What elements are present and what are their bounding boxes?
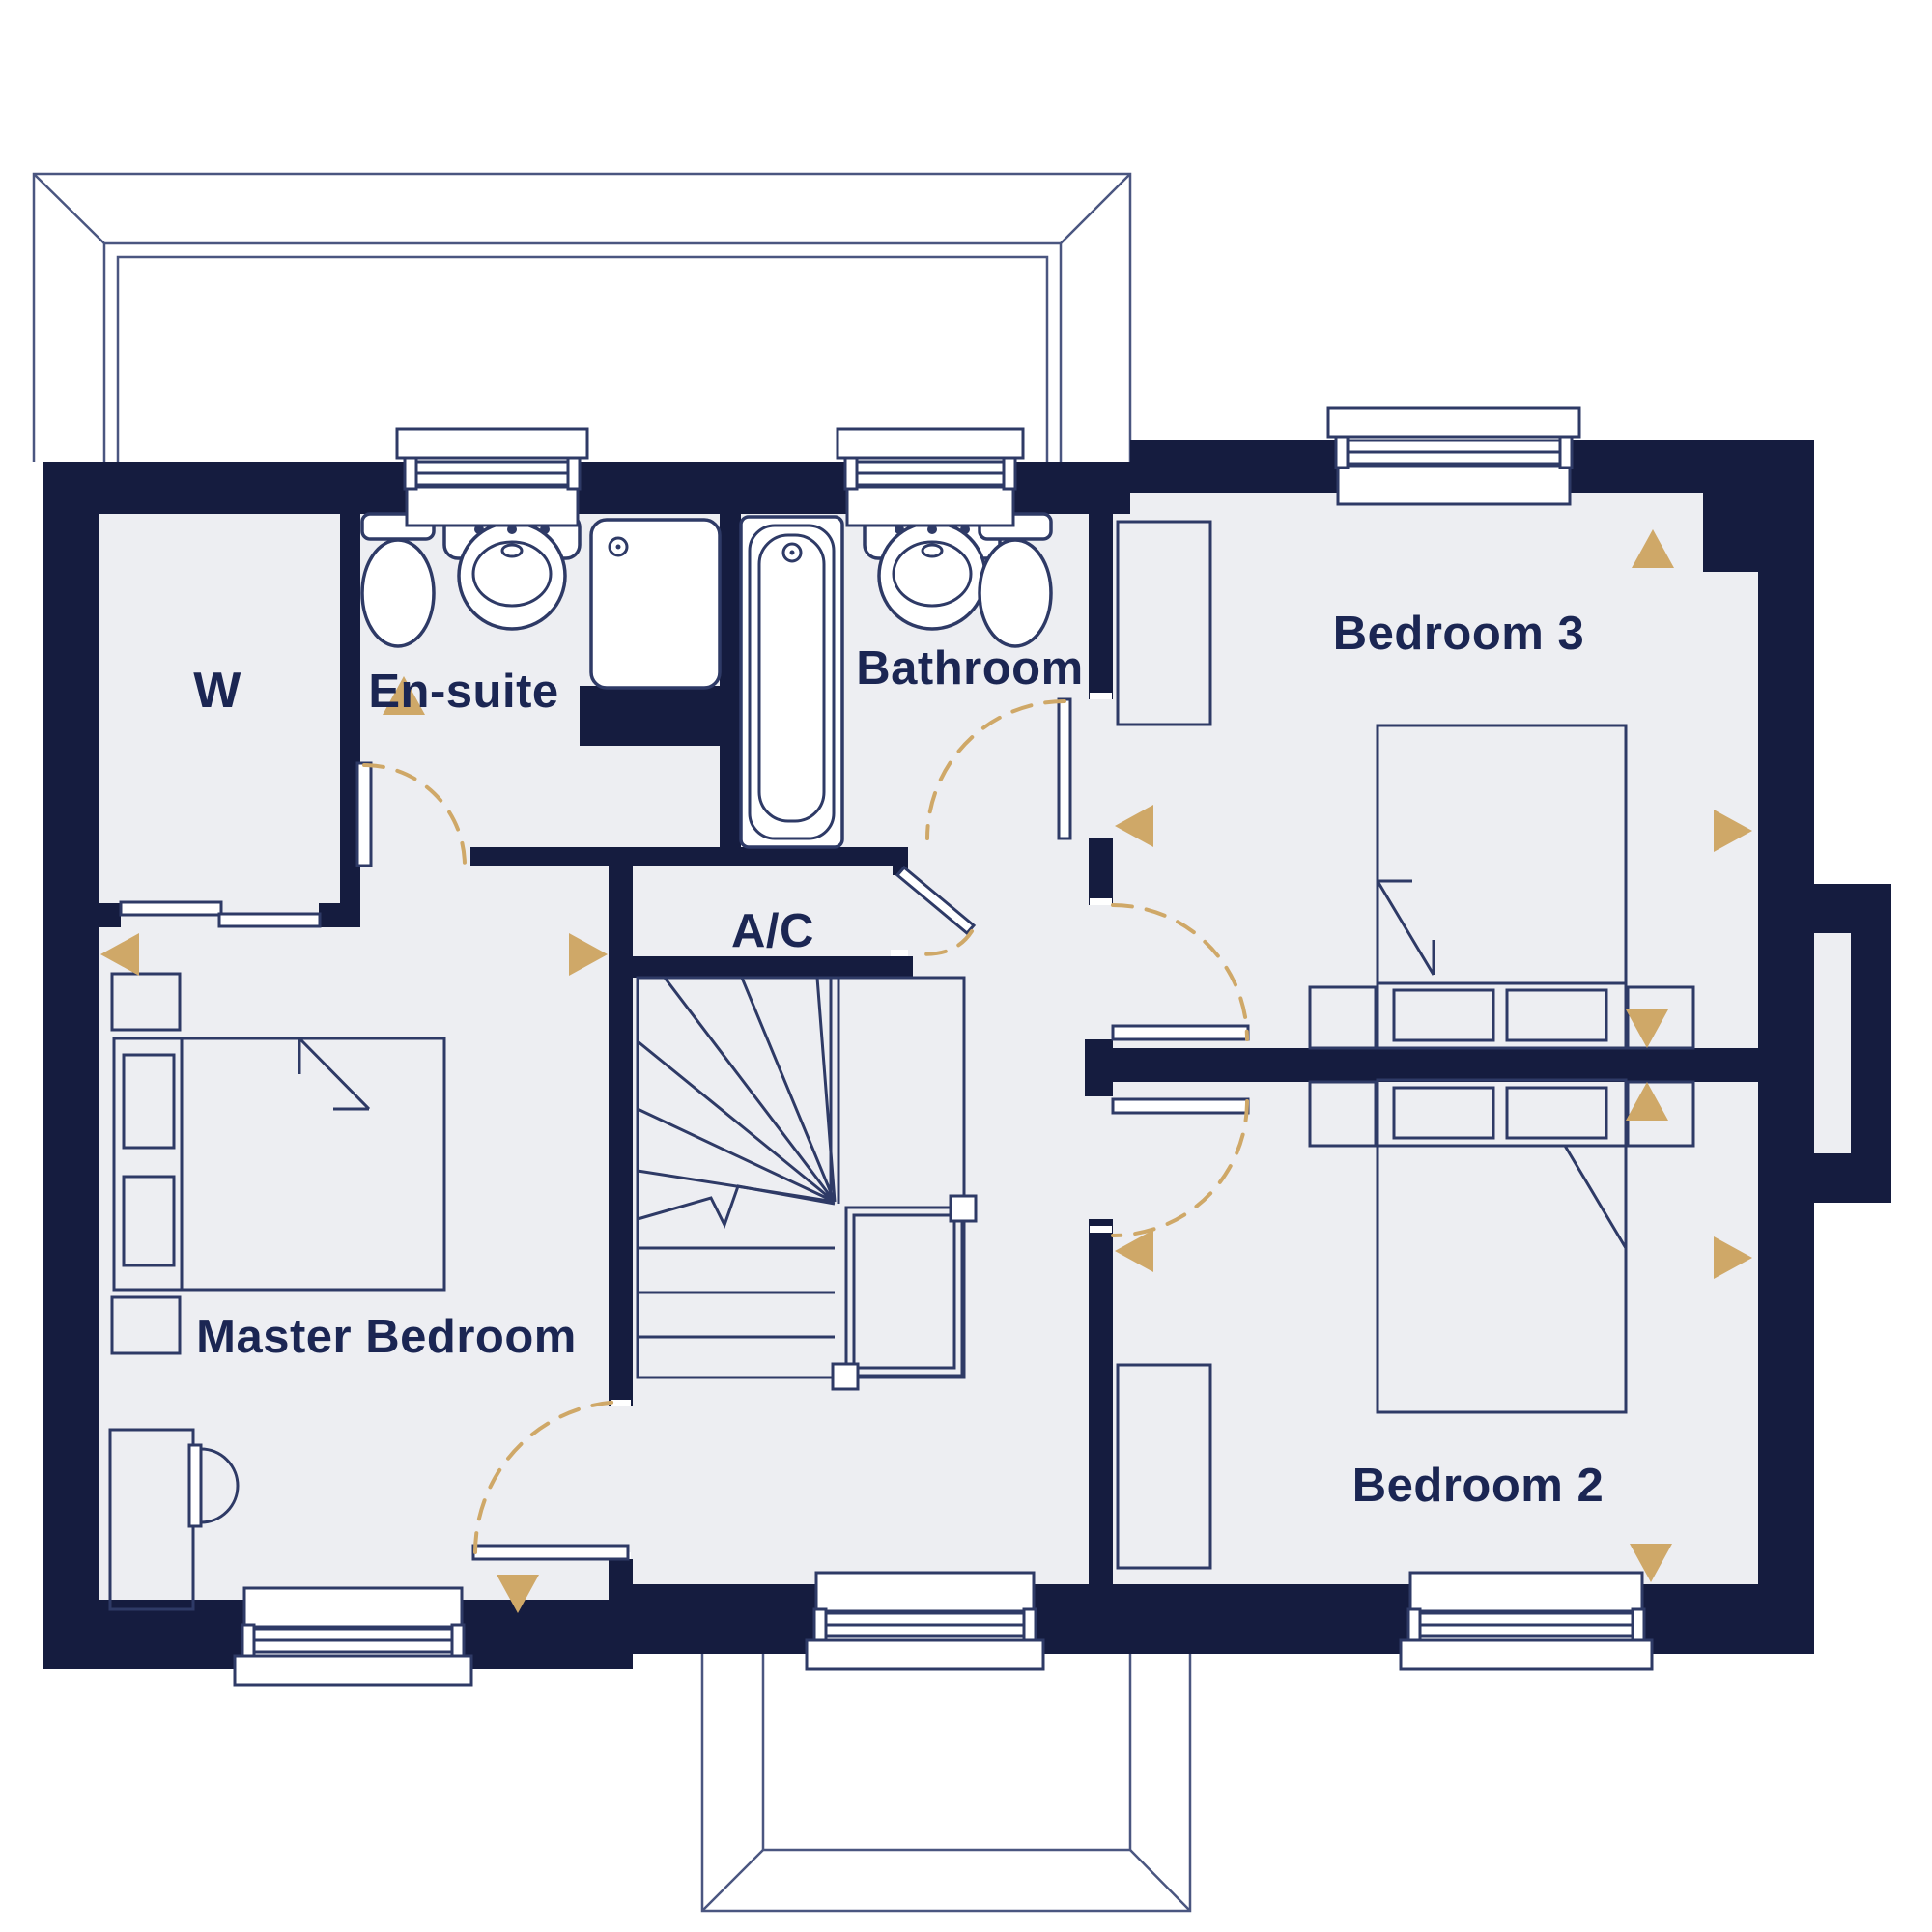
room-label-bedroom-3: Bedroom 3: [1333, 608, 1584, 660]
door-leaf: [1113, 1026, 1248, 1039]
landing-window: [807, 1573, 1043, 1669]
room-label-wardrobe: W: [193, 663, 241, 719]
room-label-en-suite: En-suite: [368, 666, 558, 718]
room-label-bedroom-2: Bedroom 2: [1352, 1460, 1604, 1512]
wardrobe-opening-jamb-right: [319, 903, 340, 927]
bathroom-window: [838, 429, 1023, 526]
en-suite-window: [397, 429, 587, 526]
wardrobe-sliding-door: [121, 902, 221, 915]
wardrobe-opening-jamb-left: [99, 903, 121, 927]
bathroom-toilet: [980, 514, 1051, 646]
room-label-master-bedroom: Master Bedroom: [196, 1311, 577, 1363]
newel-post: [833, 1364, 858, 1389]
bathtub: [741, 517, 842, 847]
door-leaf: [357, 763, 371, 866]
stairs-top-wall: [633, 956, 913, 978]
bedroom-2-window: [1401, 1573, 1652, 1669]
porch-outline: [702, 1654, 1190, 1911]
en-suite-toilet: [362, 514, 434, 646]
master-bedroom-window: [235, 1588, 471, 1685]
bedroom-3-window: [1328, 408, 1579, 504]
wardrobe-sliding-door: [219, 914, 320, 926]
floor-plan-page: WEn-suiteBathroomA/CMaster BedroomBedroo…: [0, 0, 1932, 1932]
room-label-bathroom: Bathroom: [856, 642, 1083, 695]
balcony-outline: [34, 174, 1130, 462]
door-leaf: [473, 1546, 628, 1559]
shower: [591, 520, 720, 688]
door-leaf: [1059, 699, 1070, 838]
floor-plan: WEn-suiteBathroomA/CMaster BedroomBedroo…: [0, 0, 1932, 1932]
master-door-stub: [609, 1559, 633, 1600]
chimney-recess-floor: [1814, 933, 1851, 1153]
desk-chair-back: [189, 1445, 201, 1526]
door-leaf: [1113, 1099, 1248, 1113]
newel-post: [951, 1196, 976, 1221]
bedroom-dividing-wall: [1113, 1048, 1758, 1082]
room-label-airing-cupboard: A/C: [731, 905, 814, 957]
chimney-bottom: [1814, 1153, 1891, 1203]
dividing-wall-cap: [1085, 1039, 1113, 1096]
shower-base-wall: [580, 686, 720, 746]
